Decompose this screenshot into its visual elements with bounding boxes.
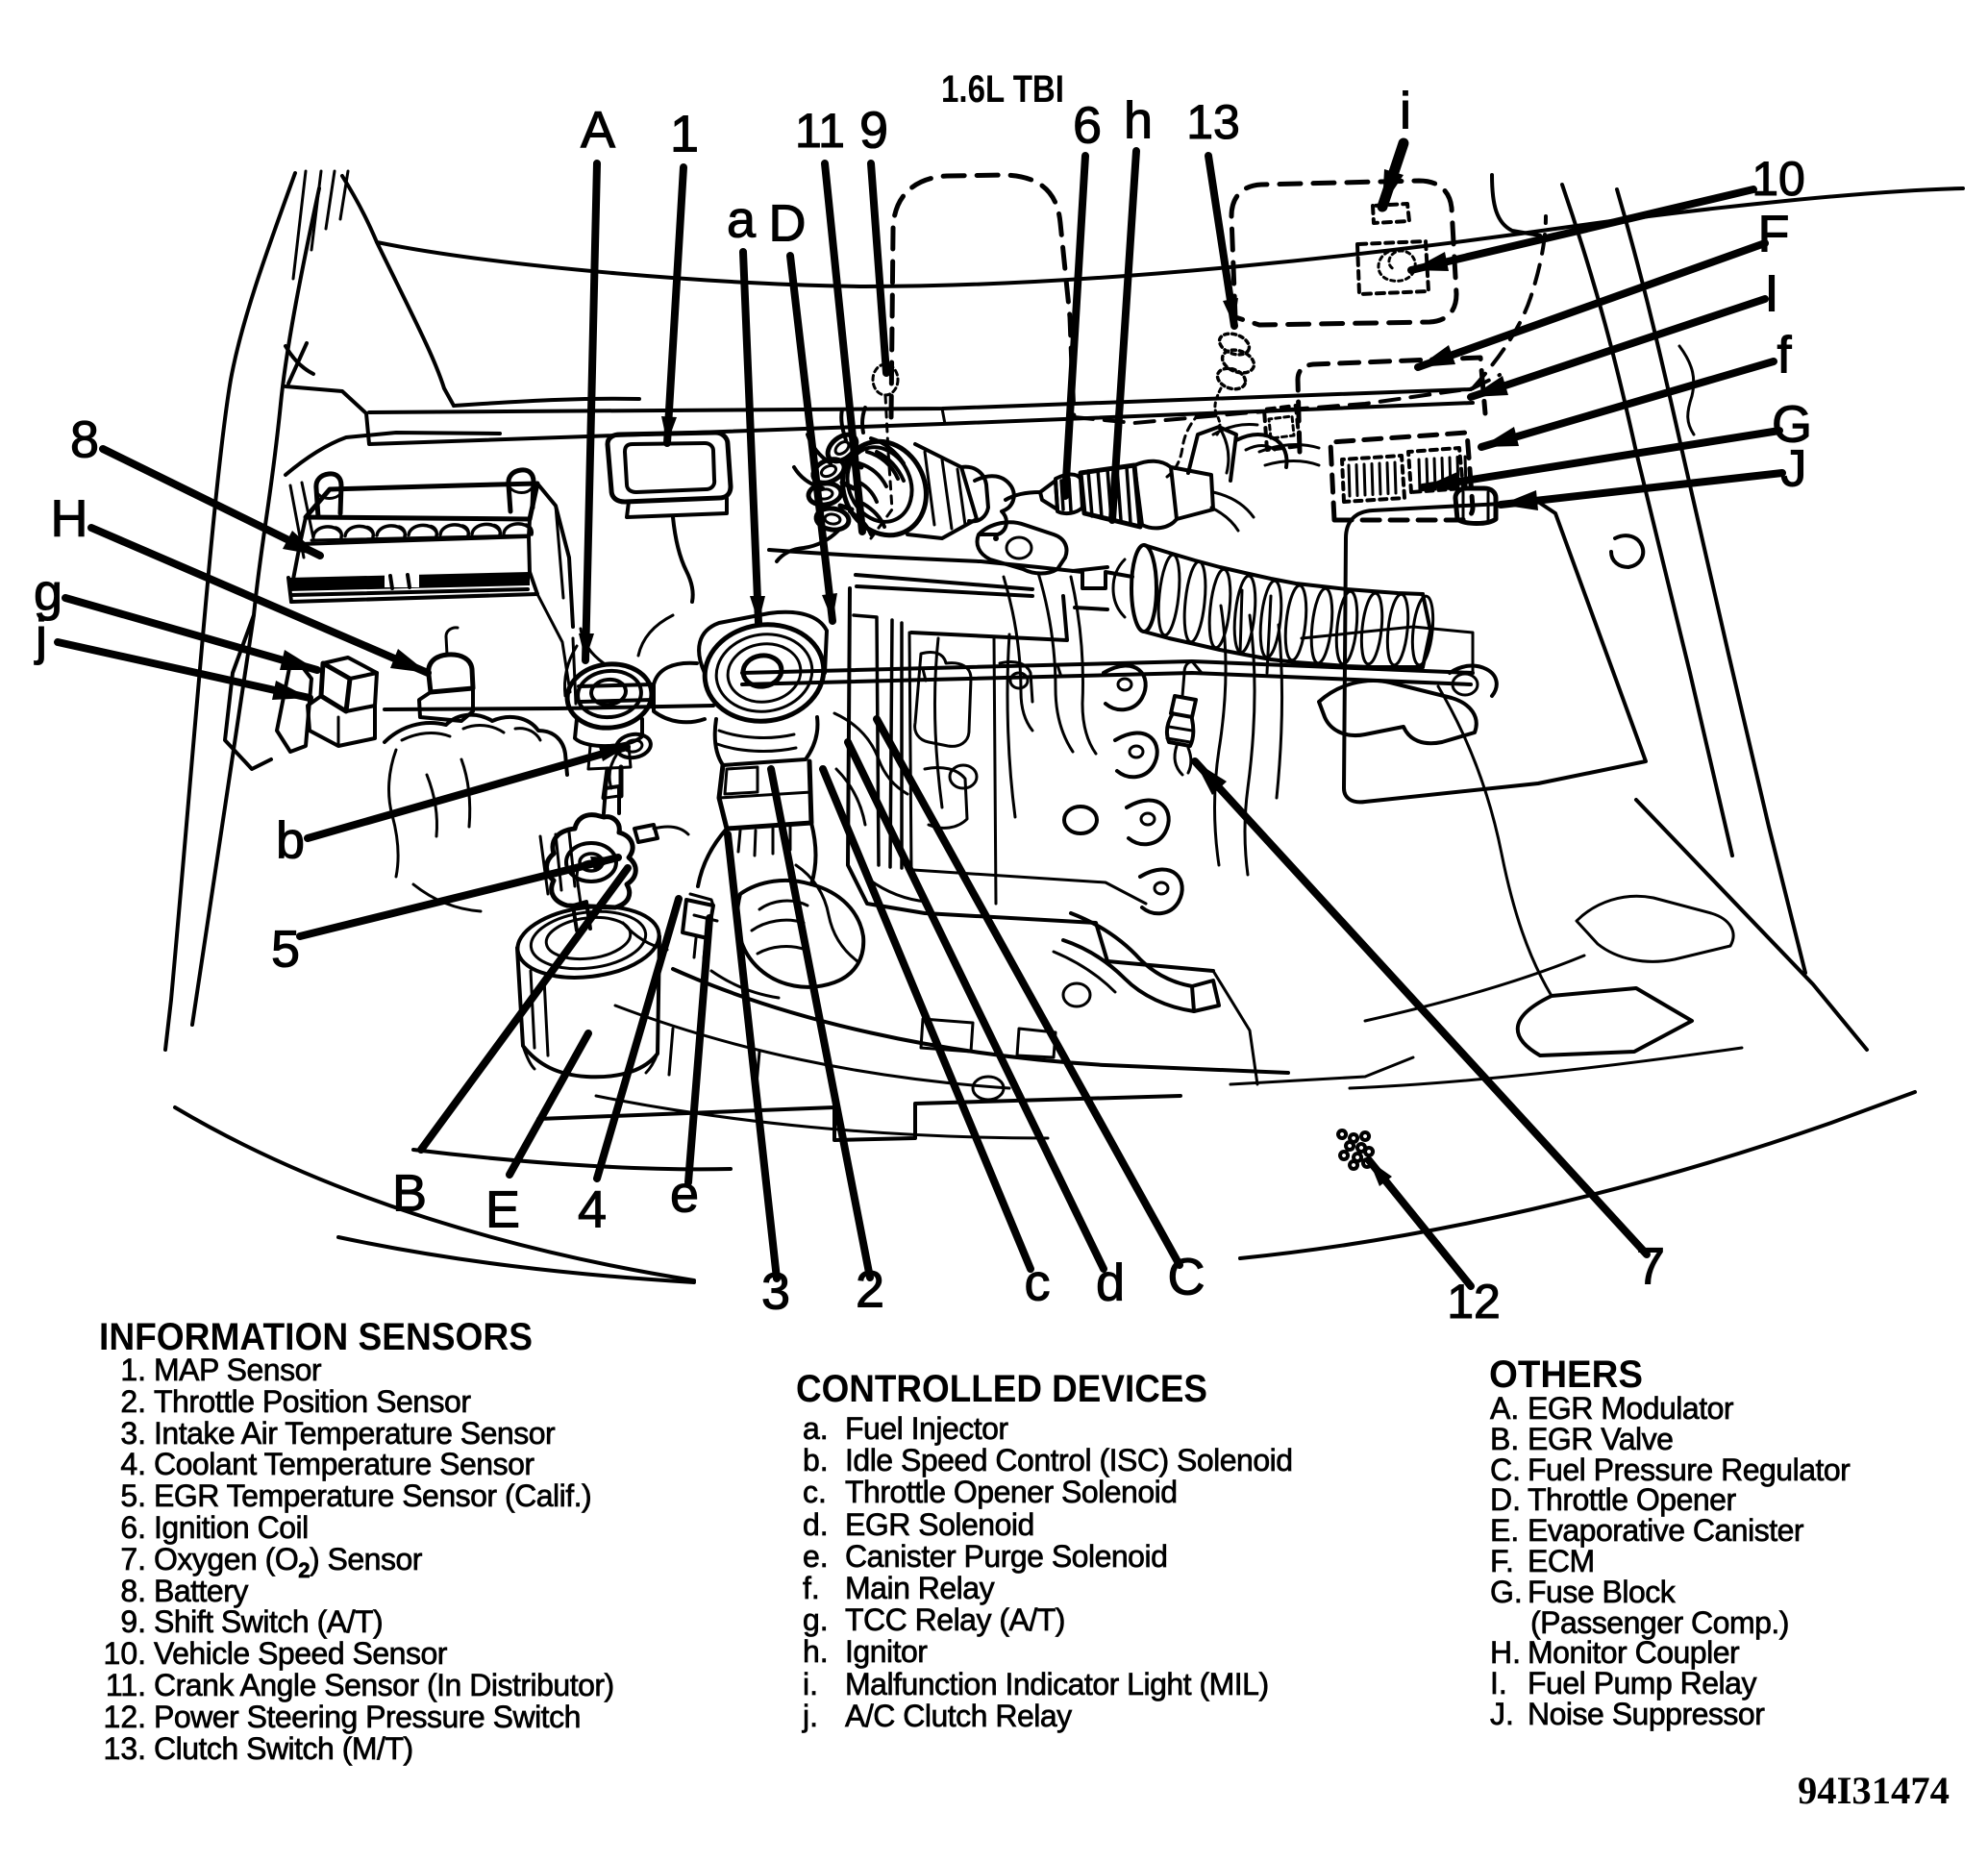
svg-text:Throttle Opener: Throttle Opener	[1528, 1482, 1736, 1517]
svg-text:d.: d.	[803, 1507, 829, 1542]
svg-text:B.: B.	[1490, 1422, 1519, 1456]
svg-text:Vehicle Speed Sensor: Vehicle Speed Sensor	[154, 1636, 448, 1671]
svg-text:13.: 13.	[104, 1731, 146, 1766]
svg-text:H: H	[51, 489, 88, 547]
svg-text:Canister Purge Solenoid: Canister Purge Solenoid	[845, 1539, 1167, 1574]
svg-text:11.: 11.	[106, 1668, 146, 1702]
svg-text:A/C Clutch Relay: A/C Clutch Relay	[845, 1699, 1072, 1733]
svg-text:C: C	[1168, 1248, 1205, 1305]
svg-text:5: 5	[271, 920, 300, 978]
svg-text:10: 10	[1752, 152, 1805, 206]
svg-text:EGR Solenoid: EGR Solenoid	[845, 1507, 1034, 1542]
svg-text:Coolant Temperature Sensor: Coolant Temperature Sensor	[154, 1447, 534, 1481]
svg-text:h: h	[1124, 91, 1153, 149]
svg-text:12: 12	[1447, 1275, 1501, 1328]
svg-text:a: a	[727, 190, 757, 248]
svg-text:F: F	[1758, 205, 1790, 262]
svg-text:Noise Suppressor: Noise Suppressor	[1528, 1697, 1765, 1731]
svg-text:OTHERS: OTHERS	[1489, 1353, 1643, 1396]
svg-text:B: B	[392, 1164, 427, 1222]
svg-text:Fuel Injector: Fuel Injector	[845, 1411, 1008, 1446]
svg-text:EGR Modulator: EGR Modulator	[1528, 1391, 1734, 1426]
svg-text:CONTROLLED DEVICES: CONTROLLED DEVICES	[796, 1368, 1207, 1410]
svg-text:i.: i.	[803, 1667, 818, 1701]
svg-text:9: 9	[859, 101, 888, 159]
svg-text:Throttle Opener Solenoid: Throttle Opener Solenoid	[845, 1475, 1178, 1509]
svg-text:A.: A.	[1490, 1391, 1519, 1426]
svg-text:J: J	[1781, 439, 1807, 497]
svg-text:1.6L TBI: 1.6L TBI	[941, 68, 1064, 111]
svg-text:f.: f.	[803, 1571, 820, 1605]
svg-text:4.: 4.	[120, 1447, 146, 1481]
svg-text:j: j	[34, 608, 47, 665]
svg-text:g.: g.	[803, 1602, 829, 1637]
svg-text:Shift Switch (A/T): Shift Switch (A/T)	[154, 1604, 383, 1639]
svg-text:2: 2	[856, 1260, 884, 1318]
svg-text:10.: 10.	[104, 1636, 146, 1671]
svg-text:5.: 5.	[120, 1478, 146, 1513]
svg-text:D.: D.	[1490, 1482, 1521, 1517]
svg-text:H.: H.	[1490, 1635, 1521, 1670]
svg-text:4: 4	[578, 1180, 607, 1238]
svg-text:A: A	[581, 101, 615, 159]
svg-text:I.: I.	[1490, 1666, 1507, 1701]
svg-text:Fuse Block: Fuse Block	[1528, 1575, 1677, 1609]
svg-text:9.: 9.	[120, 1604, 146, 1639]
svg-text:Idle Speed Control (ISC) Solen: Idle Speed Control (ISC) Solenoid	[845, 1443, 1293, 1477]
svg-text:Throttle Position Sensor: Throttle Position Sensor	[154, 1384, 471, 1419]
svg-text:3.: 3.	[120, 1416, 146, 1451]
svg-text:E.: E.	[1490, 1513, 1519, 1548]
svg-text:Crank Angle Sensor (In Distrib: Crank Angle Sensor (In Distributor)	[154, 1668, 614, 1702]
svg-text:b: b	[276, 811, 305, 869]
svg-text:b.: b.	[803, 1443, 829, 1477]
svg-text:Battery: Battery	[154, 1574, 248, 1608]
svg-text:Main Relay: Main Relay	[845, 1571, 995, 1605]
svg-text:Fuel Pump Relay: Fuel Pump Relay	[1528, 1666, 1756, 1701]
svg-text:Monitor Coupler: Monitor Coupler	[1528, 1635, 1740, 1670]
svg-text:MAP Sensor: MAP Sensor	[154, 1353, 322, 1387]
svg-text:7.: 7.	[120, 1542, 146, 1576]
svg-text:2.: 2.	[120, 1384, 146, 1419]
svg-text:Ignition Coil: Ignition Coil	[154, 1510, 309, 1545]
svg-text:f: f	[1777, 326, 1792, 384]
svg-text:e: e	[670, 1165, 699, 1223]
svg-text:Evaporative Canister: Evaporative Canister	[1528, 1513, 1804, 1548]
svg-text:h.: h.	[803, 1634, 829, 1669]
svg-text:Clutch Switch (M/T): Clutch Switch (M/T)	[154, 1731, 413, 1766]
svg-text:13: 13	[1186, 95, 1240, 149]
svg-text:Malfunction Indicator Light (M: Malfunction Indicator Light (MIL)	[845, 1667, 1269, 1701]
svg-text:6: 6	[1073, 96, 1102, 154]
svg-text:i: i	[1400, 82, 1411, 139]
svg-text:E: E	[485, 1180, 520, 1238]
svg-text:TCC Relay (A/T): TCC Relay (A/T)	[845, 1602, 1065, 1637]
svg-text:ECM: ECM	[1528, 1544, 1595, 1578]
svg-text:d: d	[1096, 1254, 1125, 1311]
svg-text:1: 1	[670, 105, 699, 162]
svg-text:12.: 12.	[104, 1700, 146, 1734]
svg-text:8.: 8.	[120, 1574, 146, 1608]
svg-text:J.: J.	[1490, 1697, 1514, 1731]
svg-text:6.: 6.	[120, 1510, 146, 1545]
svg-text:3: 3	[761, 1262, 790, 1320]
svg-text:F.: F.	[1490, 1544, 1514, 1578]
svg-text:j.: j.	[802, 1699, 818, 1733]
svg-text:1.: 1.	[120, 1353, 146, 1387]
svg-text:c: c	[1025, 1254, 1051, 1311]
svg-text:Ignitor: Ignitor	[845, 1634, 928, 1669]
svg-text:D: D	[769, 194, 807, 252]
svg-text:e.: e.	[803, 1539, 829, 1574]
svg-text:G.: G.	[1490, 1575, 1523, 1609]
svg-text:94I31474: 94I31474	[1798, 1769, 1950, 1812]
svg-text:I: I	[1764, 264, 1778, 322]
svg-text:EGR Valve: EGR Valve	[1528, 1422, 1673, 1456]
svg-text:7: 7	[1636, 1237, 1665, 1295]
svg-text:a.: a.	[803, 1411, 829, 1446]
svg-text:11: 11	[795, 104, 845, 158]
svg-text:8: 8	[70, 410, 99, 468]
svg-text:c.: c.	[803, 1475, 827, 1509]
svg-text:Power Steering Pressure Switch: Power Steering Pressure Switch	[154, 1700, 581, 1734]
svg-text:Intake Air Temperature Sensor: Intake Air Temperature Sensor	[154, 1416, 556, 1451]
svg-text:EGR Temperature Sensor (Calif.: EGR Temperature Sensor (Calif.)	[154, 1478, 591, 1513]
